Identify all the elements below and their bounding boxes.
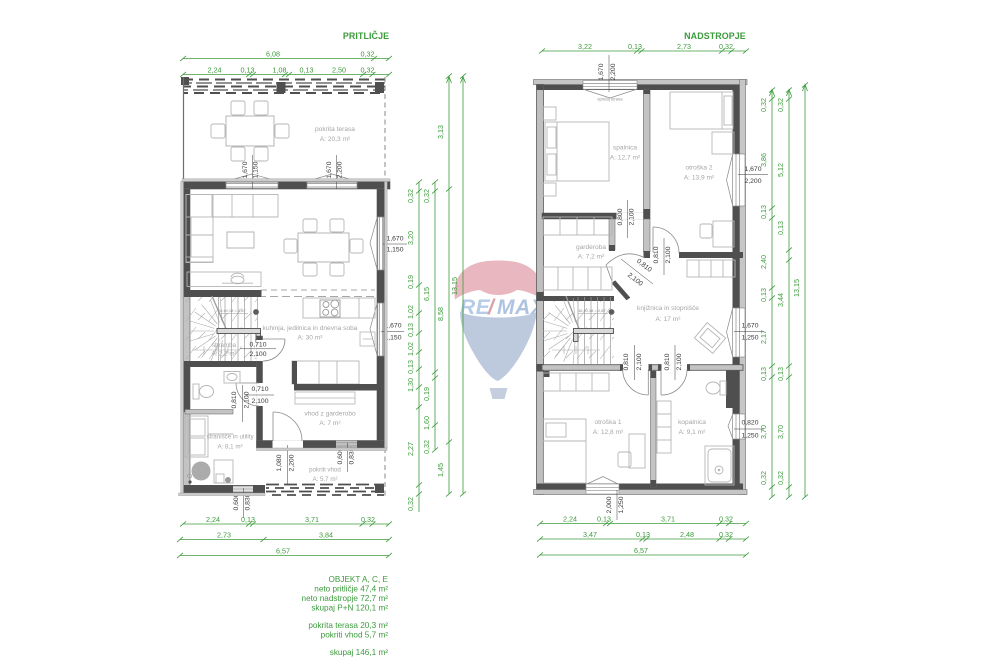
svg-text:0,32: 0,32: [406, 497, 415, 511]
svg-text:6,57: 6,57: [634, 546, 648, 555]
svg-text:0,810: 0,810: [653, 246, 660, 263]
svg-text:3,71: 3,71: [661, 514, 675, 523]
svg-text:pokrita terasa 20,3 m²: pokrita terasa 20,3 m²: [308, 621, 388, 630]
svg-text:0,13: 0,13: [776, 221, 785, 235]
svg-text:3,22: 3,22: [578, 42, 592, 51]
svg-text:3,20: 3,20: [406, 231, 415, 245]
svg-text:otroška 2: otroška 2: [685, 165, 712, 172]
svg-text:1,670: 1,670: [386, 236, 403, 243]
svg-text:2,100: 2,100: [251, 398, 268, 405]
svg-text:knjižnica in stopnišče: knjižnica in stopnišče: [637, 305, 699, 312]
svg-text:spalnica: spalnica: [613, 145, 638, 152]
svg-text:neto pritličje 47,4 m²: neto pritličje 47,4 m²: [314, 585, 388, 594]
svg-text:13,15: 13,15: [792, 279, 801, 297]
svg-text:2,200: 2,200: [744, 178, 761, 185]
svg-text:0,13: 0,13: [759, 367, 768, 381]
svg-text:A: 2,2 m²: A: 2,2 m²: [211, 351, 236, 358]
svg-text:2,000: 2,000: [606, 496, 613, 513]
svg-text:RE: RE: [460, 296, 491, 319]
svg-text:A: 12,8 m²: A: 12,8 m²: [593, 429, 624, 436]
svg-text:2,100: 2,100: [676, 353, 683, 370]
svg-text:0,13: 0,13: [406, 360, 415, 374]
svg-text:0,19: 0,19: [422, 387, 431, 401]
svg-text:A: 30 m²: A: 30 m²: [298, 335, 324, 342]
svg-text:1,670: 1,670: [242, 161, 249, 178]
svg-text:0,32: 0,32: [776, 471, 785, 485]
svg-text:13,15: 13,15: [450, 277, 459, 295]
svg-text:kuhinja, jedilnica in dnevna s: kuhinja, jedilnica in dnevna soba: [263, 325, 358, 332]
svg-text:3,47: 3,47: [583, 530, 597, 539]
svg-text:0,32: 0,32: [361, 49, 375, 58]
svg-text:A: 12,7 m²: A: 12,7 m²: [610, 155, 641, 162]
svg-text:3,70: 3,70: [759, 425, 768, 439]
svg-text:2,200: 2,200: [610, 63, 617, 80]
svg-text:0,820: 0,820: [741, 420, 758, 427]
svg-text:skupaj P+N 120,1 m²: skupaj P+N 120,1 m²: [311, 604, 388, 613]
svg-text:1,670: 1,670: [598, 63, 605, 80]
svg-text:0,13: 0,13: [597, 514, 611, 523]
svg-text:0,710: 0,710: [249, 342, 266, 349]
svg-text:6,57: 6,57: [276, 546, 290, 555]
svg-text:2,40: 2,40: [759, 255, 768, 269]
svg-text:2,100: 2,100: [249, 351, 266, 358]
svg-text:2,50: 2,50: [332, 65, 346, 74]
svg-text:2,24: 2,24: [563, 514, 577, 523]
svg-text:A: 7 m²: A: 7 m²: [319, 420, 341, 427]
svg-text:kopalnica: kopalnica: [678, 419, 706, 426]
svg-text:1,45: 1,45: [436, 463, 445, 477]
svg-text:1,670: 1,670: [741, 323, 758, 330]
svg-text:vhod z garderobo: vhod z garderobo: [304, 411, 356, 418]
svg-text:spodaj terasa: spodaj terasa: [597, 97, 623, 102]
svg-text:0,32: 0,32: [422, 440, 431, 454]
svg-text:2,100: 2,100: [636, 353, 643, 370]
svg-text:1,250: 1,250: [741, 433, 758, 440]
svg-text:A: 9,1 m²: A: 9,1 m²: [679, 429, 707, 436]
svg-text:0,13: 0,13: [241, 65, 255, 74]
svg-text:pokriti vhod 5,7 m²: pokriti vhod 5,7 m²: [321, 631, 389, 640]
svg-text:0,32: 0,32: [422, 189, 431, 203]
svg-text:3,71: 3,71: [305, 515, 319, 524]
svg-text:0,32: 0,32: [406, 189, 415, 203]
svg-text:0,600: 0,600: [233, 493, 240, 510]
svg-text:0,810: 0,810: [623, 353, 630, 370]
svg-text:0,32: 0,32: [719, 42, 733, 51]
svg-text:0,32: 0,32: [776, 98, 785, 112]
svg-text:16 x0,18 = 2,87: 16 x0,18 = 2,87: [578, 308, 606, 313]
svg-text:6,08: 6,08: [266, 49, 280, 58]
svg-text:0,13: 0,13: [406, 323, 415, 337]
svg-text:1,150: 1,150: [253, 161, 260, 178]
svg-text:1,30: 1,30: [406, 378, 415, 392]
svg-text:OBJEKT A, C, E: OBJEKT A, C, E: [329, 575, 389, 584]
svg-text:pokrita terasa: pokrita terasa: [315, 126, 355, 133]
svg-text:pokriti vhod: pokriti vhod: [309, 467, 341, 474]
svg-text:8,58: 8,58: [436, 307, 445, 321]
svg-text:6,15: 6,15: [422, 287, 431, 301]
svg-text:0,13: 0,13: [241, 515, 255, 524]
svg-text:1,150: 1,150: [386, 247, 403, 254]
svg-text:1,670: 1,670: [326, 161, 333, 178]
svg-text:garderoba: garderoba: [576, 244, 606, 251]
svg-text:2,17: 2,17: [759, 330, 768, 344]
svg-text:0,32: 0,32: [759, 471, 768, 485]
svg-text:2,200: 2,200: [337, 161, 344, 178]
svg-text:5,12: 5,12: [776, 163, 785, 177]
svg-text:0,32: 0,32: [361, 65, 375, 74]
svg-text:1,08: 1,08: [273, 65, 287, 74]
svg-text:0,19: 0,19: [406, 275, 415, 289]
svg-text:otroška 1: otroška 1: [594, 419, 621, 426]
svg-text:0,32: 0,32: [719, 514, 733, 523]
svg-text:2,73: 2,73: [217, 530, 231, 539]
svg-text:0,32: 0,32: [361, 515, 375, 524]
svg-text:2,100: 2,100: [665, 246, 672, 263]
svg-text:0,830: 0,830: [245, 493, 252, 510]
svg-text:0,13: 0,13: [636, 530, 650, 539]
svg-text:1,250: 1,250: [741, 335, 758, 342]
svg-text:0,13: 0,13: [776, 367, 785, 381]
svg-text:0,13: 0,13: [628, 42, 642, 51]
svg-text:0,32: 0,32: [719, 530, 733, 539]
svg-text:0,13: 0,13: [300, 65, 314, 74]
svg-text:2,48: 2,48: [680, 530, 694, 539]
svg-text:3,44: 3,44: [776, 293, 785, 307]
svg-text:0,810: 0,810: [664, 353, 671, 370]
svg-text:A: 7,2 m²: A: 7,2 m²: [578, 254, 606, 261]
svg-text:0,710: 0,710: [251, 386, 268, 393]
svg-text:3,86: 3,86: [759, 153, 768, 167]
svg-text:2,100: 2,100: [244, 391, 251, 408]
svg-text:stranišče in utility: stranišče in utility: [206, 434, 254, 441]
svg-text:0,32: 0,32: [759, 98, 768, 112]
svg-text:A: 17 m²: A: 17 m²: [656, 316, 682, 323]
svg-text:2,24: 2,24: [206, 515, 220, 524]
svg-text:A: 13,9 m²: A: 13,9 m²: [684, 175, 715, 182]
svg-text:2,200: 2,200: [289, 454, 296, 471]
svg-text:2,27: 2,27: [406, 442, 415, 456]
svg-text:1,02: 1,02: [406, 305, 415, 319]
svg-text:1,250: 1,250: [618, 496, 625, 513]
svg-text:1,60: 1,60: [422, 416, 431, 430]
svg-text:A: 8,1 m²: A: 8,1 m²: [217, 444, 242, 451]
svg-text:shramba: shramba: [212, 342, 237, 349]
svg-text:3,70: 3,70: [776, 425, 785, 439]
svg-text:NADSTROPJE: NADSTROPJE: [684, 31, 746, 41]
svg-text:PRITLIČJE: PRITLIČJE: [343, 30, 389, 41]
svg-text:0,810: 0,810: [231, 391, 238, 408]
svg-text:1,080: 1,080: [276, 454, 283, 471]
svg-text:0,800: 0,800: [617, 208, 624, 225]
svg-text:0,13: 0,13: [759, 288, 768, 302]
svg-text:0,13: 0,13: [759, 205, 768, 219]
svg-text:3,13: 3,13: [436, 125, 445, 139]
svg-text:A: 5,7 m²: A: 5,7 m²: [312, 476, 337, 483]
svg-text:2,24: 2,24: [208, 65, 222, 74]
svg-text:16 x0,18 = 2,87: 16 x0,18 = 2,87: [218, 308, 246, 313]
svg-text:neto nadstropje 72,7 m²: neto nadstropje 72,7 m²: [302, 594, 389, 603]
svg-text:3,84: 3,84: [319, 530, 333, 539]
svg-text:2,73: 2,73: [677, 42, 691, 51]
svg-text:2,100: 2,100: [629, 208, 636, 225]
svg-text:A: 20,3 m²: A: 20,3 m²: [320, 136, 351, 143]
svg-text:1,02: 1,02: [406, 342, 415, 356]
svg-text:skupaj 146,1 m²: skupaj 146,1 m²: [330, 648, 389, 657]
